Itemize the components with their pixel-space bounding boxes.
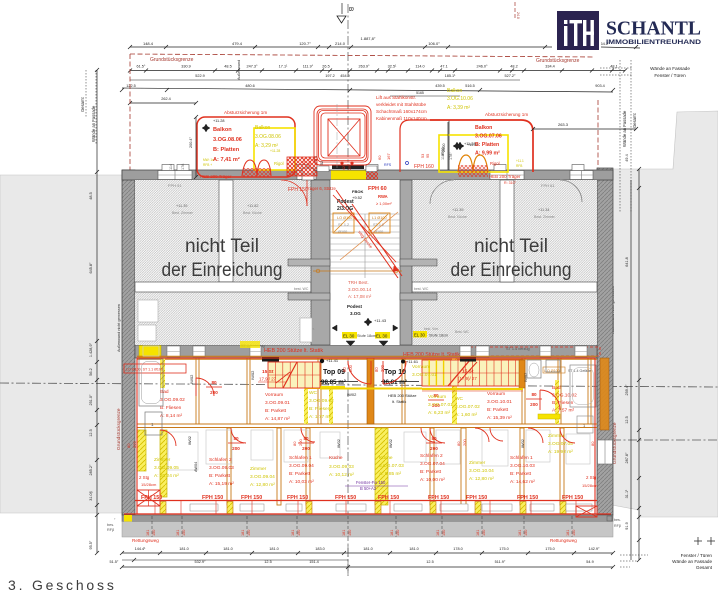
svg-text:3.OG.09.03: 3.OG.09.03 bbox=[329, 464, 354, 470]
svg-text:+11.82: +11.82 bbox=[247, 204, 258, 208]
svg-text:95: 95 bbox=[426, 154, 430, 158]
svg-text:B: Platten: B: Platten bbox=[475, 142, 499, 148]
svg-text:214.0: 214.0 bbox=[335, 41, 346, 46]
svg-text:B 50+A2: B 50+A2 bbox=[360, 486, 377, 491]
svg-text:Vorraum: Vorraum bbox=[487, 391, 505, 397]
svg-text:EL 30: EL 30 bbox=[343, 334, 355, 339]
svg-text:lt. Statik: lt. Statik bbox=[392, 399, 406, 404]
svg-text:48.1: 48.1 bbox=[610, 65, 617, 69]
svg-text:96,81 m²: 96,81 m² bbox=[382, 379, 407, 386]
svg-text:(17,9)/ 27: (17,9)/ 27 bbox=[458, 376, 477, 381]
svg-text:150: 150 bbox=[297, 530, 301, 536]
svg-text:263.3: 263.3 bbox=[558, 122, 569, 127]
svg-text:Fenster / Türen: Fenster / Türen bbox=[654, 73, 686, 78]
svg-text:144.4¹: 144.4¹ bbox=[135, 547, 147, 551]
svg-text:263.9°: 263.9° bbox=[358, 65, 370, 69]
svg-text:Zimmer: Zimmer bbox=[250, 466, 267, 472]
svg-text:200: 200 bbox=[430, 446, 438, 451]
svg-text:B: Parkett: B: Parkett bbox=[265, 408, 287, 414]
svg-text:150: 150 bbox=[482, 530, 486, 536]
svg-text:+11.1: +11.1 bbox=[516, 159, 524, 163]
svg-text:200: 200 bbox=[298, 439, 303, 446]
svg-text:200: 200 bbox=[462, 439, 467, 446]
svg-text:3.OG.09.02: 3.OG.09.02 bbox=[160, 397, 185, 403]
svg-text:Gesamt: Gesamt bbox=[696, 565, 713, 570]
svg-text:3.OG.09.04: 3.OG.09.04 bbox=[289, 463, 314, 469]
svg-text:RFS: RFS bbox=[384, 163, 392, 167]
svg-text:IW02: IW02 bbox=[389, 439, 393, 448]
svg-text:Rettungsweg: Rettungsweg bbox=[550, 538, 577, 543]
svg-text:26.5: 26.5 bbox=[322, 65, 329, 69]
svg-text:175.0: 175.0 bbox=[545, 547, 555, 551]
svg-text:A: 14,87 m²: A: 14,87 m² bbox=[265, 416, 290, 422]
svg-text:80: 80 bbox=[126, 443, 131, 448]
svg-text:Gesamt: Gesamt bbox=[80, 97, 85, 112]
svg-text:IW02: IW02 bbox=[347, 392, 357, 397]
svg-text:WC: WC bbox=[309, 390, 318, 396]
svg-text:Außenwand nicht gemessen: Außenwand nicht gemessen bbox=[117, 304, 121, 352]
svg-text:150: 150 bbox=[572, 530, 576, 536]
svg-text:116°: 116° bbox=[441, 152, 445, 160]
svg-text:A: 10,03 m²: A: 10,03 m² bbox=[289, 479, 314, 485]
svg-text:B: Parkett: B: Parkett bbox=[510, 471, 532, 477]
svg-text:EL 30: EL 30 bbox=[414, 333, 425, 338]
svg-text:B: Parkett: B: Parkett bbox=[487, 407, 509, 413]
svg-text:Bad: Bad bbox=[160, 389, 169, 395]
svg-text:3.OG.07.01: 3.OG.07.01 bbox=[428, 402, 453, 408]
svg-text:+9.52: +9.52 bbox=[352, 195, 363, 200]
svg-text:200: 200 bbox=[530, 402, 538, 407]
svg-text:Best. Küche: Best. Küche bbox=[243, 211, 262, 215]
svg-text:48.5: 48.5 bbox=[224, 65, 231, 69]
svg-text:91.9: 91.9 bbox=[625, 522, 629, 529]
svg-text:3.OG.10.03: 3.OG.10.03 bbox=[510, 463, 535, 469]
svg-text:17.1¹: 17.1¹ bbox=[279, 65, 288, 69]
svg-text:verkleidet mit Stahlstübe: verkleidet mit Stahlstübe bbox=[376, 102, 426, 107]
svg-text:A: 17,08 m²: A: 17,08 m² bbox=[348, 294, 372, 299]
svg-text:Zimmer: Zimmer bbox=[154, 457, 171, 463]
svg-text:516.5: 516.5 bbox=[465, 84, 475, 88]
svg-text:15 St: 15 St bbox=[262, 369, 274, 375]
svg-text:RFB +: RFB + bbox=[203, 163, 212, 167]
svg-text:Küche: Küche bbox=[329, 455, 343, 461]
svg-text:181: 181 bbox=[436, 530, 440, 536]
svg-text:259.4°: 259.4° bbox=[625, 384, 629, 396]
svg-text:56.2: 56.2 bbox=[89, 368, 93, 375]
svg-text:15/28cm: 15/28cm bbox=[141, 482, 157, 487]
svg-text:24.0: 24.0 bbox=[516, 12, 520, 19]
svg-text:142.9°: 142.9° bbox=[588, 547, 600, 551]
svg-text:A: 3,39 m²: A: 3,39 m² bbox=[447, 105, 470, 111]
svg-text:178: 178 bbox=[181, 164, 185, 170]
svg-text:Stufe 18cm: Stufe 18cm bbox=[429, 334, 448, 338]
svg-text:Balkon: Balkon bbox=[213, 127, 232, 133]
svg-text:181: 181 bbox=[518, 530, 522, 536]
svg-text:181.0: 181.0 bbox=[409, 547, 419, 551]
svg-text:181: 181 bbox=[241, 530, 245, 536]
svg-text:80: 80 bbox=[374, 367, 379, 372]
svg-text:A: 12,80 m²: A: 12,80 m² bbox=[250, 482, 275, 488]
svg-text:Wände an Fassade: Wände an Fassade bbox=[91, 105, 96, 142]
svg-text:3.OG.10.04: 3.OG.10.04 bbox=[469, 468, 494, 474]
svg-text:Balkon: Balkon bbox=[255, 125, 271, 131]
svg-text:185.1¹: 185.1¹ bbox=[445, 74, 457, 78]
svg-text:95.5°: 95.5° bbox=[89, 540, 93, 549]
svg-text:111.9°: 111.9° bbox=[303, 65, 314, 69]
svg-text:Schlafen 1: Schlafen 1 bbox=[510, 455, 533, 461]
svg-text:Balkon: Balkon bbox=[475, 125, 492, 131]
svg-text:Podest: Podest bbox=[347, 304, 363, 309]
svg-text:RFβ: RFβ bbox=[614, 524, 621, 528]
svg-text:RFB: RFB bbox=[516, 164, 522, 168]
svg-text:12.5: 12.5 bbox=[625, 416, 629, 423]
svg-text:IW02: IW02 bbox=[250, 370, 255, 380]
svg-text:183.0: 183.0 bbox=[315, 547, 325, 551]
svg-text:FPH 51: FPH 51 bbox=[168, 183, 182, 188]
svg-text:A: 1,60 m²: A: 1,60 m² bbox=[455, 412, 478, 418]
svg-text:bes.: bes. bbox=[614, 518, 621, 522]
svg-text:178°: 178° bbox=[449, 152, 453, 160]
svg-text:48.5: 48.5 bbox=[89, 192, 93, 199]
svg-text:IMMOBILIENTREUHAND: IMMOBILIENTREUHAND bbox=[606, 39, 701, 46]
svg-text:251.0°: 251.0° bbox=[89, 394, 93, 406]
svg-text:Vorraum: Vorraum bbox=[428, 394, 446, 400]
svg-text:Best. Küche: Best. Küche bbox=[448, 215, 467, 219]
svg-text:2 Stg: 2 Stg bbox=[139, 475, 150, 480]
svg-text:FPH 60: FPH 60 bbox=[368, 186, 387, 192]
svg-text:3.OG.09.03: 3.OG.09.03 bbox=[209, 465, 234, 471]
svg-text:29: 29 bbox=[348, 166, 352, 170]
svg-text:Best. Zimmer: Best. Zimmer bbox=[534, 215, 556, 219]
svg-text:IW02: IW02 bbox=[188, 436, 192, 445]
svg-text:Grundstücksgrenze: Grundstücksgrenze bbox=[150, 57, 194, 63]
svg-text:181: 181 bbox=[476, 530, 480, 536]
svg-text:330.9: 330.9 bbox=[181, 65, 191, 69]
svg-text:A: 19,92 m²: A: 19,92 m² bbox=[548, 449, 573, 455]
svg-text:181.0: 181.0 bbox=[223, 547, 233, 551]
svg-text:+11.61: +11.61 bbox=[406, 359, 419, 364]
svg-text:52: 52 bbox=[320, 161, 324, 165]
svg-text:A: 5,85 m²: A: 5,85 m² bbox=[379, 471, 402, 477]
svg-text:3.OG.08.06: 3.OG.08.06 bbox=[255, 134, 281, 140]
svg-text:98,85 m²: 98,85 m² bbox=[321, 379, 346, 386]
svg-text:FPH 150: FPH 150 bbox=[288, 187, 308, 193]
svg-text:175.0: 175.0 bbox=[499, 547, 509, 551]
svg-text:B: B bbox=[347, 7, 354, 11]
svg-text:106.0°: 106.0° bbox=[428, 41, 440, 46]
svg-text:60: 60 bbox=[377, 155, 382, 160]
svg-text:181: 181 bbox=[146, 530, 150, 536]
svg-text:3.OG.10.01: 3.OG.10.01 bbox=[487, 399, 512, 405]
svg-text:167: 167 bbox=[386, 153, 391, 160]
svg-text:49.4: 49.4 bbox=[625, 154, 629, 161]
svg-text:200: 200 bbox=[302, 446, 310, 451]
svg-text:51.5°: 51.5° bbox=[110, 560, 119, 564]
svg-text:RWA: RWA bbox=[378, 194, 388, 199]
svg-text:IW02: IW02 bbox=[521, 439, 525, 448]
svg-text:A: 10,12 m²: A: 10,12 m² bbox=[329, 472, 354, 478]
svg-text:181: 181 bbox=[390, 530, 394, 536]
svg-text:32.5¹: 32.5¹ bbox=[388, 65, 397, 69]
svg-text:3.OG.10.02: 3.OG.10.02 bbox=[552, 393, 577, 399]
svg-text:B: Parkett: B: Parkett bbox=[209, 473, 231, 479]
svg-text:12.5: 12.5 bbox=[426, 560, 433, 564]
svg-text:+11.39: +11.39 bbox=[452, 208, 463, 212]
svg-text:3.OG.09.01: 3.OG.09.01 bbox=[265, 400, 290, 406]
svg-text:120.7°: 120.7° bbox=[299, 41, 311, 46]
svg-text:Zimmer: Zimmer bbox=[469, 460, 486, 466]
svg-text:ST 1.4 verzug: ST 1.4 verzug bbox=[506, 347, 530, 351]
svg-text:Bad: Bad bbox=[552, 385, 561, 391]
svg-text:181: 181 bbox=[342, 530, 346, 536]
svg-text:479.4: 479.4 bbox=[232, 41, 243, 46]
svg-text:1.428,9°: 1.428,9° bbox=[89, 342, 93, 357]
svg-text:178.0: 178.0 bbox=[453, 547, 463, 551]
svg-text:+11.35: +11.35 bbox=[176, 204, 187, 208]
svg-text:IW02: IW02 bbox=[337, 439, 341, 448]
svg-text:HEB 200 Stütze lt. Statik: HEB 200 Stütze lt. Statik bbox=[264, 348, 323, 354]
svg-text:3.OG.07.03: 3.OG.07.03 bbox=[379, 463, 404, 469]
svg-text:150: 150 bbox=[247, 530, 251, 536]
svg-text:A: 10,00 m²: A: 10,00 m² bbox=[420, 477, 445, 483]
svg-text:80: 80 bbox=[211, 380, 217, 385]
svg-text:FPH 160: FPH 160 bbox=[414, 164, 434, 170]
svg-text:200: 200 bbox=[132, 441, 137, 448]
svg-text:151.4: 151.4 bbox=[309, 560, 319, 564]
svg-text:R: 310°: R: 310° bbox=[504, 181, 517, 185]
svg-text:Balkon: Balkon bbox=[447, 88, 463, 94]
svg-text:Rigol: Rigol bbox=[490, 161, 500, 166]
svg-text:Vorraum: Vorraum bbox=[265, 392, 283, 398]
svg-text:3. Geschoss: 3. Geschoss bbox=[8, 577, 117, 593]
svg-text:FPH 61: FPH 61 bbox=[541, 183, 555, 188]
svg-text:15/28cm: 15/28cm bbox=[582, 483, 598, 488]
svg-text:FBOK: FBOK bbox=[352, 189, 363, 194]
svg-text:80: 80 bbox=[590, 441, 595, 446]
svg-text:903.4: 903.4 bbox=[595, 84, 605, 88]
svg-text:247.3°: 247.3° bbox=[246, 65, 258, 69]
svg-text:+11.41: +11.41 bbox=[326, 358, 339, 363]
svg-text:Vorraum: Vorraum bbox=[412, 364, 430, 370]
svg-text:+11.28: +11.28 bbox=[270, 149, 280, 153]
svg-text:Best. Zimmer: Best. Zimmer bbox=[172, 211, 194, 215]
svg-text:≥ 1,00m²: ≥ 1,00m² bbox=[376, 201, 392, 206]
svg-text:WC: WC bbox=[455, 396, 464, 402]
svg-text:511.9°: 511.9° bbox=[495, 560, 506, 564]
svg-text:A: 7,41 m²: A: 7,41 m² bbox=[213, 156, 240, 163]
svg-text:Schlafen 1: Schlafen 1 bbox=[289, 455, 312, 461]
svg-text:Rettungsweg: Rettungsweg bbox=[132, 538, 159, 543]
svg-text:150: 150 bbox=[182, 530, 186, 536]
svg-text:B: Platten: B: Platten bbox=[213, 147, 240, 153]
svg-text:nicht Teil: nicht Teil bbox=[185, 236, 259, 257]
svg-text:200: 200 bbox=[210, 390, 218, 395]
svg-text:B: Parkett: B: Parkett bbox=[420, 469, 442, 475]
svg-text:262.4: 262.4 bbox=[161, 97, 171, 101]
svg-text:3.OG.00.14: 3.OG.00.14 bbox=[348, 287, 372, 292]
svg-text:3.OG.09.04: 3.OG.09.04 bbox=[250, 474, 275, 480]
svg-text:Schlafen 2: Schlafen 2 bbox=[420, 453, 443, 459]
svg-text:IW02: IW02 bbox=[189, 374, 194, 384]
svg-text:181.0: 181.0 bbox=[179, 547, 189, 551]
svg-text:+11.28: +11.28 bbox=[464, 142, 475, 146]
svg-text:480.6: 480.6 bbox=[245, 84, 255, 88]
svg-text:Schlafen 2: Schlafen 2 bbox=[209, 457, 232, 463]
svg-text:31.1¹: 31.1¹ bbox=[625, 489, 629, 498]
svg-text:LO Ø100: LO Ø100 bbox=[337, 216, 352, 220]
svg-text:53: 53 bbox=[421, 154, 425, 158]
svg-text:80: 80 bbox=[292, 441, 297, 446]
svg-text:Außenwand: Außenwand bbox=[237, 60, 241, 80]
svg-text:A: 7,57 m²: A: 7,57 m² bbox=[552, 408, 575, 414]
svg-text:12.5: 12.5 bbox=[89, 429, 93, 436]
svg-text:Wände an Fassade: Wände an Fassade bbox=[650, 66, 690, 71]
svg-text:122.5: 122.5 bbox=[126, 84, 136, 88]
svg-text:Grundstücksgrenze: Grundstücksgrenze bbox=[536, 58, 580, 64]
svg-text:522.9: 522.9 bbox=[195, 74, 205, 78]
svg-text:A: 14,62 m²: A: 14,62 m² bbox=[510, 479, 535, 485]
svg-text:RFβ: RFβ bbox=[107, 528, 115, 532]
svg-text:der Einreichung: der Einreichung bbox=[162, 260, 283, 281]
svg-text:HEB 200 Stütze lt. Statik: HEB 200 Stütze lt. Statik bbox=[403, 352, 460, 358]
svg-text:200.4°: 200.4° bbox=[189, 136, 193, 148]
svg-text:3.OG.09.05: 3.OG.09.05 bbox=[154, 465, 179, 471]
svg-text:287.6°: 287.6° bbox=[625, 452, 629, 464]
svg-text:Absturzsicherung 1m: Absturzsicherung 1m bbox=[485, 112, 528, 117]
svg-text:181: 181 bbox=[291, 530, 295, 536]
svg-text:150: 150 bbox=[524, 530, 528, 536]
svg-text:181.0: 181.0 bbox=[269, 547, 279, 551]
svg-text:AW04: AW04 bbox=[194, 462, 198, 472]
svg-text:TRH Best.: TRH Best. bbox=[348, 280, 369, 285]
svg-text:A: 15,19 m²: A: 15,19 m² bbox=[209, 481, 234, 487]
svg-text:bes.: bes. bbox=[107, 523, 114, 527]
svg-text:3.OG.08.06: 3.OG.08.06 bbox=[213, 137, 242, 143]
svg-text:181: 181 bbox=[176, 530, 180, 536]
svg-text:197.2: 197.2 bbox=[325, 74, 335, 78]
svg-text:A: 15,39 m²: A: 15,39 m² bbox=[487, 415, 512, 421]
svg-text:200: 200 bbox=[380, 364, 385, 372]
svg-text:Grundstücksgrenze: Grundstücksgrenze bbox=[116, 408, 122, 450]
svg-text:Träger 6, Stütze: Träger 6, Stütze bbox=[306, 186, 337, 191]
svg-text:12.5: 12.5 bbox=[264, 560, 271, 564]
svg-text:47.1: 47.1 bbox=[440, 65, 447, 69]
svg-text:285.2°: 285.2° bbox=[89, 464, 93, 476]
svg-text:148.4: 148.4 bbox=[143, 41, 154, 46]
svg-text:641.8: 641.8 bbox=[625, 257, 629, 267]
svg-text:150: 150 bbox=[348, 530, 352, 536]
svg-text:3.OG.10.06: 3.OG.10.06 bbox=[447, 96, 473, 102]
svg-text:B: Fliesen: B: Fliesen bbox=[552, 400, 574, 406]
svg-text:80: 80 bbox=[456, 441, 461, 446]
svg-text:+11.28: +11.28 bbox=[213, 119, 224, 123]
svg-text:A: 8,14 m²: A: 8,14 m² bbox=[160, 413, 183, 419]
svg-text:61.5°: 61.5° bbox=[137, 65, 146, 69]
svg-text:150: 150 bbox=[152, 530, 156, 536]
svg-text:nicht Teil: nicht Teil bbox=[474, 236, 548, 257]
svg-text:A: 1,77 m²: A: 1,77 m² bbox=[309, 414, 332, 420]
svg-text:439.5: 439.5 bbox=[435, 84, 445, 88]
svg-text:der Einreichung: der Einreichung bbox=[451, 260, 572, 281]
svg-text:Fenster-Fix 150: Fenster-Fix 150 bbox=[356, 480, 386, 485]
svg-text:best. Vorr.: best. Vorr. bbox=[424, 327, 439, 331]
svg-text:Schachtmaß 160x174cm: Schachtmaß 160x174cm bbox=[376, 109, 427, 114]
svg-text:ST 1.4 Gefälle: ST 1.4 Gefälle bbox=[568, 369, 591, 373]
svg-text:+11.34: +11.34 bbox=[538, 208, 549, 212]
svg-text:best. WC: best. WC bbox=[414, 287, 429, 291]
svg-text:3.OG: 3.OG bbox=[350, 311, 361, 316]
svg-text:SCHANTL: SCHANTL bbox=[606, 18, 701, 40]
svg-text:114.0: 114.0 bbox=[415, 65, 424, 69]
svg-text:+11.43: +11.43 bbox=[374, 318, 387, 323]
svg-text:Fenster / Türen: Fenster / Türen bbox=[681, 553, 713, 558]
svg-text:Absturzsicherung 1m: Absturzsicherung 1m bbox=[224, 110, 267, 115]
svg-text:48.2: 48.2 bbox=[510, 65, 517, 69]
svg-text:200: 200 bbox=[348, 364, 353, 372]
svg-text:2/3.OG: 2/3.OG bbox=[337, 206, 353, 212]
svg-text:Wände an Fassade: Wände an Fassade bbox=[622, 110, 627, 147]
svg-text:MW: 1x: MW: 1x bbox=[203, 158, 214, 162]
svg-text:A: 20,24 m²: A: 20,24 m² bbox=[154, 473, 179, 479]
svg-text:181: 181 bbox=[566, 530, 570, 536]
svg-text:HEB 200 Träger: HEB 200 Träger bbox=[489, 174, 521, 179]
svg-text:527.2°: 527.2° bbox=[504, 74, 516, 78]
svg-text:532.9°: 532.9° bbox=[194, 560, 206, 564]
svg-text:LO Ø100, ST 1.1 Ø100: LO Ø100, ST 1.1 Ø100 bbox=[126, 368, 163, 372]
svg-text:A: 6,23 m²: A: 6,23 m² bbox=[428, 410, 451, 416]
svg-text:3.OG.07.06: 3.OG.07.06 bbox=[475, 134, 502, 140]
svg-text:HEB 200 Träger: HEB 200 Träger bbox=[200, 174, 232, 179]
svg-text:454.9: 454.9 bbox=[340, 74, 350, 78]
svg-text:3.OG.09.02: 3.OG.09.02 bbox=[309, 398, 334, 404]
svg-text:80: 80 bbox=[531, 392, 537, 397]
svg-text:80: 80 bbox=[342, 367, 347, 372]
svg-text:Wände an Fassade: Wände an Fassade bbox=[672, 559, 712, 564]
svg-text:Lift aus Stahlkonstr.: Lift aus Stahlkonstr. bbox=[376, 95, 416, 100]
svg-text:114: 114 bbox=[169, 164, 173, 170]
svg-text:31.0§: 31.0§ bbox=[89, 491, 93, 501]
svg-text:645.8°: 645.8° bbox=[89, 262, 93, 274]
svg-text:1.887,8°: 1.887,8° bbox=[361, 36, 376, 41]
svg-text:HEB 200 Stütze: HEB 200 Stütze bbox=[388, 393, 417, 398]
svg-text:3.OG.07.02: 3.OG.07.02 bbox=[455, 404, 480, 410]
svg-text:5165: 5165 bbox=[416, 91, 424, 95]
svg-text:181.0: 181.0 bbox=[363, 547, 373, 551]
svg-text:334.4: 334.4 bbox=[545, 65, 555, 69]
svg-text:best. WC: best. WC bbox=[294, 287, 309, 291]
svg-text:3.OG.07.0​1: 3.OG.07.0​1 bbox=[412, 372, 437, 378]
svg-text:15 St: 15 St bbox=[462, 369, 474, 375]
svg-text:Gesamt: Gesamt bbox=[632, 113, 637, 128]
svg-text:246.0°: 246.0° bbox=[476, 65, 488, 69]
svg-text:B: Fliesen: B: Fliesen bbox=[309, 406, 331, 412]
svg-text:A: 12,80 m²: A: 12,80 m² bbox=[469, 476, 494, 482]
svg-text:Küche: Küche bbox=[379, 455, 393, 461]
svg-text:EL 30: EL 30 bbox=[376, 334, 388, 339]
svg-text:17,9 / 27: 17,9 / 27 bbox=[259, 377, 277, 382]
svg-text:B: Parkett: B: Parkett bbox=[289, 471, 311, 477]
svg-text:Rigol: Rigol bbox=[274, 161, 284, 166]
svg-text:42: 42 bbox=[342, 166, 346, 170]
svg-text:54.9: 54.9 bbox=[586, 560, 593, 564]
svg-text:150: 150 bbox=[396, 530, 400, 536]
svg-text:3.OG.07.04: 3.OG.07.04 bbox=[420, 461, 445, 467]
svg-text:150: 150 bbox=[442, 530, 446, 536]
svg-text:200: 200 bbox=[232, 446, 240, 451]
svg-text:Best. WC: Best. WC bbox=[455, 330, 470, 334]
svg-text:Stufe 18cm: Stufe 18cm bbox=[357, 334, 376, 338]
